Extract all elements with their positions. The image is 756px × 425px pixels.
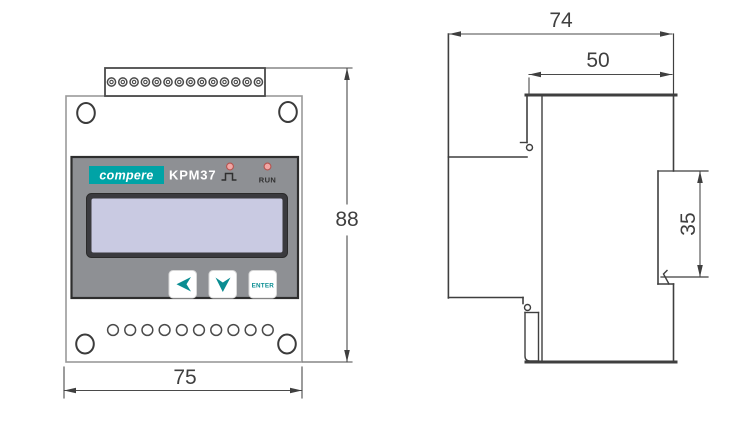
terminal-hole — [159, 325, 170, 336]
terminal-hole — [175, 78, 183, 86]
brand-logo: compere — [89, 166, 164, 184]
terminal-hole — [198, 78, 206, 86]
lcd-screen — [92, 199, 283, 253]
dimension-label-74: 74 — [549, 9, 573, 32]
pulse-led-lamp — [227, 163, 234, 170]
terminal-hole — [254, 78, 262, 86]
top-terminal-strip — [105, 68, 265, 96]
terminal-hole — [176, 325, 187, 336]
terminal-hole — [211, 325, 222, 336]
terminal-hole — [130, 78, 138, 86]
terminal-hole — [232, 78, 240, 86]
dimension-front-width: 75 — [64, 366, 302, 398]
mounting-hole — [77, 103, 95, 123]
brand-text: compere — [99, 169, 153, 183]
terminal-hole — [107, 78, 115, 86]
terminal-hole — [187, 78, 195, 86]
model-text: KPM37 — [169, 168, 216, 183]
terminal-hole — [262, 325, 273, 336]
terminal-hole — [153, 78, 161, 86]
terminal-hole — [243, 78, 251, 86]
terminal-hole — [141, 78, 149, 86]
run-led-label: RUN — [259, 176, 276, 185]
technical-drawing-canvas: compere KPM37 RUN ENTER — [0, 0, 756, 425]
run-led-lamp — [264, 163, 271, 170]
meter-dimension-drawing: compere KPM37 RUN ENTER — [0, 0, 756, 425]
terminal-hole — [194, 325, 205, 336]
mounting-hole — [279, 102, 297, 122]
dimension-label-75: 75 — [173, 366, 196, 389]
enter-button-label: ENTER — [252, 283, 275, 290]
dimension-upper-body-depth: 50 — [529, 49, 672, 96]
dimension-label-50: 50 — [586, 49, 609, 72]
dimension-side-depth: 74 — [449, 9, 672, 37]
front-buttons: ENTER — [169, 271, 277, 299]
cover-clip-detail — [525, 305, 531, 311]
terminal-hole — [125, 325, 136, 336]
terminal-hole — [245, 325, 256, 336]
dimension-din-rail-height: 35 — [677, 171, 703, 277]
cover-clip-detail — [527, 145, 533, 151]
mounting-hole — [278, 335, 296, 354]
terminal-hole — [164, 78, 172, 86]
mounting-hole — [76, 335, 94, 354]
terminal-hole — [142, 325, 153, 336]
side-view — [448, 34, 708, 362]
dimension-label-35: 35 — [677, 212, 700, 235]
front-view: compere KPM37 RUN ENTER — [66, 68, 302, 362]
terminal-hole — [108, 325, 119, 336]
terminal-hole — [209, 78, 217, 86]
terminal-hole — [119, 78, 127, 86]
terminal-hole — [220, 78, 228, 86]
terminal-hole — [228, 325, 239, 336]
dimension-label-88: 88 — [335, 208, 358, 231]
